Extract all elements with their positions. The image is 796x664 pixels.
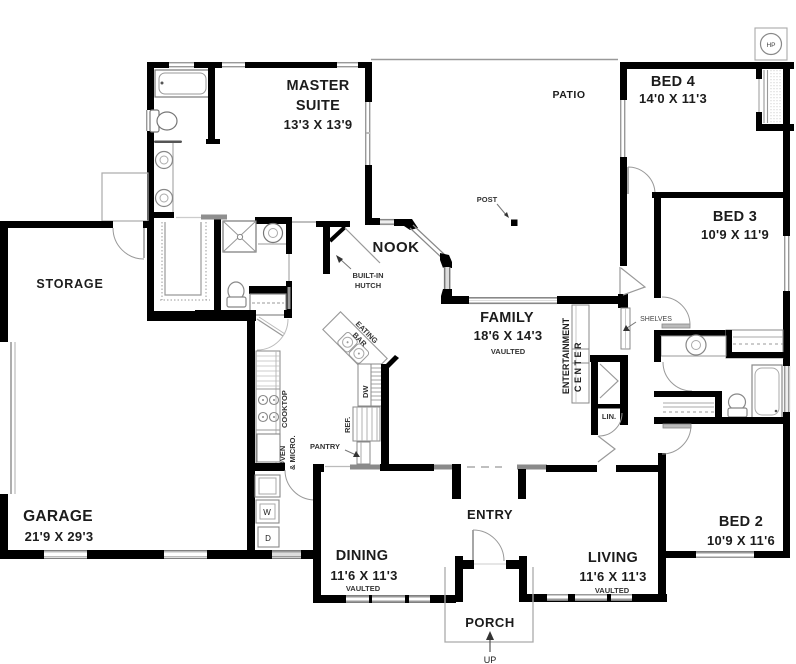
svg-text:POST: POST [477, 195, 498, 204]
svg-text:ENTERTAINMENT: ENTERTAINMENT [561, 317, 571, 394]
svg-text:MASTER: MASTER [286, 78, 349, 94]
svg-text:11'6 X 11'3: 11'6 X 11'3 [579, 569, 646, 584]
svg-text:DW: DW [361, 385, 370, 398]
svg-text:PORCH: PORCH [465, 615, 514, 630]
svg-text:GARAGE: GARAGE [23, 508, 93, 525]
svg-text:PATIO: PATIO [552, 89, 585, 101]
svg-text:21'9 X 29'3: 21'9 X 29'3 [25, 529, 94, 544]
svg-text:BED 2: BED 2 [719, 514, 763, 530]
svg-text:14'0 X 11'3: 14'0 X 11'3 [639, 91, 707, 106]
svg-text:SUITE: SUITE [296, 98, 340, 114]
svg-text:NOOK: NOOK [373, 239, 420, 256]
svg-text:ENTRY: ENTRY [467, 507, 513, 522]
svg-text:VAULTED: VAULTED [491, 347, 526, 356]
svg-text:DINING: DINING [336, 548, 389, 564]
svg-text:BED 4: BED 4 [651, 74, 695, 90]
svg-text:FAMILY: FAMILY [480, 310, 534, 326]
svg-text:LIVING: LIVING [588, 550, 638, 566]
svg-text:13'3 X 13'9: 13'3 X 13'9 [284, 117, 353, 132]
svg-text:CENTER: CENTER [573, 340, 583, 392]
svg-text:W: W [263, 508, 271, 517]
svg-text:D: D [265, 534, 271, 543]
svg-text:STORAGE: STORAGE [36, 277, 103, 291]
svg-text:18'6 X 14'3: 18'6 X 14'3 [474, 328, 543, 343]
svg-text:10'9 X 11'6: 10'9 X 11'6 [707, 533, 775, 548]
svg-text:11'6 X 11'3: 11'6 X 11'3 [330, 568, 397, 583]
svg-text:LIN.: LIN. [602, 412, 616, 421]
svg-text:PANTRY: PANTRY [310, 442, 340, 451]
svg-text:HP: HP [766, 42, 775, 49]
svg-text:BED 3: BED 3 [713, 209, 757, 225]
svg-text:UP: UP [484, 655, 497, 664]
svg-text:BUILT-IN: BUILT-IN [352, 271, 383, 280]
svg-text:COOKTOP: COOKTOP [280, 390, 289, 428]
svg-text:10'9 X 11'9: 10'9 X 11'9 [701, 227, 769, 242]
svg-text:& MICRO.: & MICRO. [288, 435, 297, 470]
svg-text:HUTCH: HUTCH [355, 281, 381, 290]
svg-text:SHELVES: SHELVES [640, 316, 672, 323]
svg-text:REF.: REF. [343, 417, 352, 433]
svg-text:VAULTED: VAULTED [346, 584, 381, 593]
